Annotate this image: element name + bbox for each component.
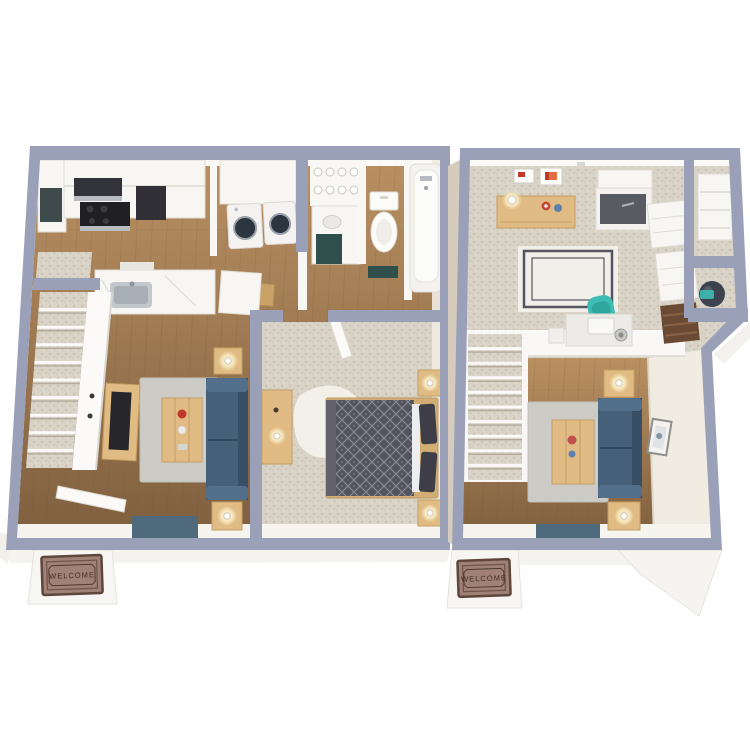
end-table-north: [214, 348, 242, 374]
decor-bowl: [178, 426, 186, 434]
nightstand-lamp-icon: [427, 380, 433, 386]
table-lamp-icon: [616, 380, 622, 386]
nightstand-north: [418, 370, 442, 396]
wall-hook: [90, 394, 95, 399]
nightstand-lamp-icon: [427, 510, 433, 516]
nightstand-south: [418, 500, 442, 526]
decor-figurine: [274, 408, 279, 413]
closet-shelves: [698, 174, 732, 240]
decor-candle: [178, 410, 187, 419]
duvet-pattern: [326, 400, 414, 496]
stair-landing: [36, 252, 92, 278]
decor-bowl: [569, 451, 576, 458]
decor-plate-blue: [554, 204, 562, 212]
first-floor-plan: WELCOME: [0, 146, 450, 604]
table-lamp-icon: [225, 358, 231, 364]
table-lamp-icon: [224, 513, 230, 519]
floor-plan-canvas: WELCOME: [0, 0, 750, 750]
refrigerator: [136, 186, 166, 220]
closet-divider: [688, 256, 738, 268]
decor-remote: [178, 444, 187, 450]
bathtub-icon: [410, 164, 442, 292]
bath-partition: [358, 160, 366, 264]
thermostat-icon: [577, 162, 585, 167]
pillow: [419, 403, 438, 444]
toilet-icon: [370, 192, 398, 252]
decor-candle: [568, 436, 577, 445]
coffee-table: [552, 420, 594, 484]
vanity-cabinet: [316, 234, 342, 264]
welcome-mat: WELCOME: [457, 559, 510, 597]
stair-stringer: [522, 334, 528, 482]
cabinet-inset: [600, 194, 646, 224]
bed: [326, 398, 438, 498]
dishwasher: [40, 188, 62, 222]
sink-peninsula: [95, 262, 215, 314]
dryer: [263, 201, 297, 245]
slab-apron: [618, 550, 722, 616]
staircase: [468, 334, 528, 482]
closet-wall: [684, 160, 694, 318]
table-lamp-icon: [621, 513, 627, 519]
vanity-wall: [310, 160, 360, 206]
floor-plan-render: WELCOME: [0, 0, 750, 750]
closet-wall: [210, 160, 217, 256]
sofa: [598, 398, 642, 498]
tv-console: [102, 383, 140, 461]
desk-drawer: [549, 328, 564, 343]
end-table-south: [608, 502, 640, 530]
second-floor-plan: WELCOME: [447, 148, 750, 616]
bed-sheet: [412, 404, 420, 492]
end-table-north: [604, 370, 634, 397]
console-lamp-icon: [508, 196, 516, 204]
end-table-south: [212, 502, 242, 530]
water-heater-icon: [699, 281, 725, 307]
wall-hook: [88, 414, 93, 419]
pillow: [419, 451, 438, 492]
welcome-mat-text: WELCOME: [49, 570, 95, 581]
welcome-mat: WELCOME: [41, 555, 102, 595]
welcome-mat-text: WELCOME: [461, 573, 507, 584]
dresser-lamp-icon: [274, 433, 280, 439]
tv-icon: [109, 391, 132, 450]
washer: [227, 203, 263, 249]
coffee-table: [162, 398, 202, 462]
bath-mat: [368, 266, 398, 278]
sofa: [206, 378, 248, 500]
dresser: [262, 390, 292, 464]
media-bench: [132, 516, 198, 538]
bathroom-vanity: [312, 206, 360, 264]
framed-art: [647, 419, 671, 456]
console-table: [497, 190, 575, 228]
laundry-shelf: [220, 160, 296, 204]
built-in-cabinet: [596, 170, 652, 230]
range-cooktop: [80, 202, 130, 231]
monitor-icon: [588, 318, 614, 334]
